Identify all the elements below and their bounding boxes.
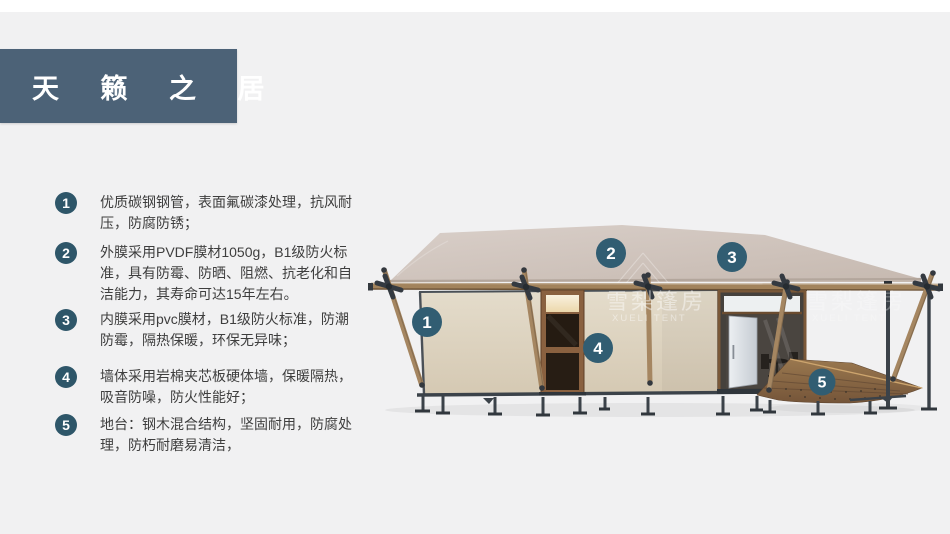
feature-text: 外膜采用PVDF膜材1050g，B1级防火标准，具有防霉、防晒、阻燃、抗老化和自… [100,242,356,305]
svg-text:4: 4 [593,339,603,358]
feature-text: 优质碳钢钢管，表面氟碳漆处理，抗风耐压，防腐防锈； [100,192,356,234]
white-door-panel [729,316,757,388]
ground-shadow [385,403,930,417]
callout-badge-2: 2 [596,238,626,268]
slide-page: 天 籁 之 居 1 优质碳钢钢管，表面氟碳漆处理，抗风耐压，防腐防锈； 2 外膜… [0,0,950,534]
watermark-cn-2: 雪梨篷房 [806,289,906,314]
feature-item-5: 5 地台：钢木混合结构，坚固耐用，防腐处理，防朽耐磨易清洁， [55,414,356,456]
entry-door [536,284,586,396]
watermark-cn: 雪梨篷房 [606,289,706,314]
feature-text: 墙体采用岩棉夹芯板硬体墙，保暖隔热，吸音防噪，防火性能好； [100,366,356,408]
feature-number-badge: 5 [55,414,77,436]
feature-text: 内膜采用pvc膜材，B1级防火标准，防潮防霉，隔热保暖，环保无异味； [100,309,356,351]
callout-badge-4: 4 [583,333,613,363]
callout-badge-3: 3 [717,242,747,272]
svg-text:1: 1 [422,313,431,332]
svg-text:2: 2 [606,244,615,263]
feature-number-badge: 2 [55,242,77,264]
door-transom-window [546,295,579,312]
top-strip [0,0,950,12]
watermark-en-2: XUELI TENT [812,313,887,324]
roof-canopy [389,225,921,292]
feature-number-badge: 3 [55,309,77,331]
feature-number-badge: 1 [55,192,77,214]
tent-illustration: 雪梨篷房 XUELI TENT 雪梨篷房 XUELI TENT 1 2 3 [360,208,950,433]
feature-item-3: 3 内膜采用pvc膜材，B1级防火标准，防潮防霉，隔热保暖，环保无异味； [55,309,356,351]
svg-text:5: 5 [818,375,827,392]
callout-badge-5: 5 [809,369,836,396]
feature-item-2: 2 外膜采用PVDF膜材1050g，B1级防火标准，具有防霉、防晒、阻燃、抗老化… [55,242,356,305]
watermark-en: XUELI TENT [612,313,687,324]
feature-item-4: 4 墙体采用岩棉夹芯板硬体墙，保暖隔热，吸音防噪，防火性能好； [55,366,356,408]
feature-number-badge: 4 [55,366,77,388]
tent-render: 雪梨篷房 XUELI TENT 雪梨篷房 XUELI TENT 1 2 3 [360,208,950,433]
title-box: 天 籁 之 居 [0,49,237,123]
feature-item-1: 1 优质碳钢钢管，表面氟碳漆处理，抗风耐压，防腐防锈； [55,192,356,234]
callout-badge-1: 1 [412,307,442,337]
feature-text: 地台：钢木混合结构，坚固耐用，防腐处理，防朽耐磨易清洁， [100,414,356,456]
svg-text:3: 3 [727,248,736,267]
page-title: 天 籁 之 居 [0,67,282,106]
